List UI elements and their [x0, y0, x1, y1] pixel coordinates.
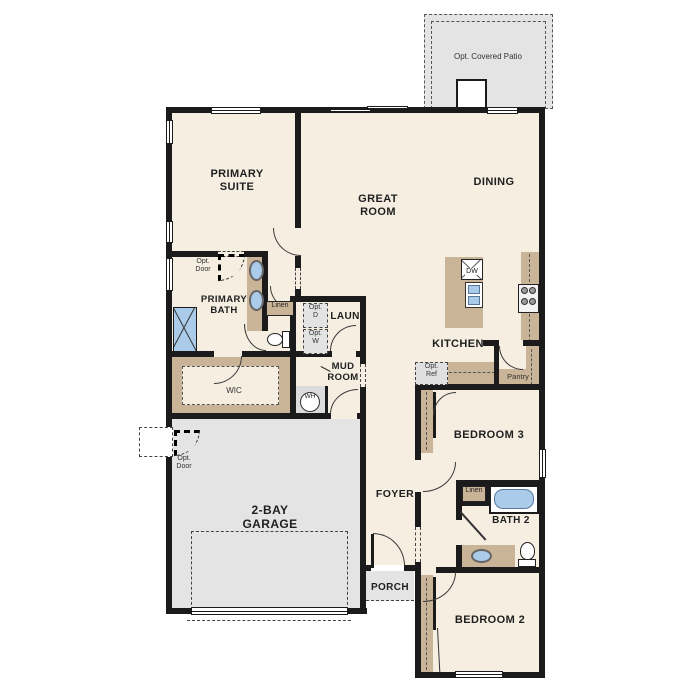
window — [166, 120, 173, 144]
kitchen-rear-counter — [447, 362, 497, 384]
island-sink-basin — [468, 285, 480, 294]
label-pantry: Pantry — [498, 372, 538, 381]
wall — [360, 387, 366, 415]
wall — [295, 107, 301, 228]
window — [166, 258, 173, 291]
window — [455, 671, 503, 678]
dishwasher: DW — [461, 259, 483, 280]
room-label-primary-bath: PRIMARY BATH — [194, 294, 254, 316]
room-label-mud-room: MUD ROOM — [320, 361, 366, 383]
window — [539, 449, 546, 478]
sliding-door-panel — [367, 106, 408, 110]
wall — [539, 107, 545, 392]
wall — [360, 565, 371, 571]
burner — [521, 287, 528, 294]
label-opt-door-garage: Opt. Door — [169, 455, 199, 472]
bathtub-basin — [494, 489, 534, 509]
sink — [471, 549, 492, 563]
garage-door — [191, 607, 348, 615]
room-label-bath2: BATH 2 — [491, 515, 531, 527]
room-label-primary-suite: PRIMARY SUITE — [202, 168, 272, 194]
room-label-wic: WIC — [214, 386, 254, 396]
wall — [166, 107, 172, 614]
opt-refrigerator: Opt. Ref — [415, 362, 448, 385]
room-label-foyer: FOYER — [365, 488, 425, 500]
counter-dash-line — [449, 372, 495, 373]
wall — [166, 251, 218, 257]
burner — [529, 298, 536, 305]
opt-door-dashed-box — [139, 427, 173, 457]
wall — [415, 384, 421, 460]
toilet-bowl — [520, 542, 535, 560]
window — [211, 107, 261, 114]
front-door-leaf — [371, 534, 374, 568]
island-sink-basin — [468, 296, 480, 305]
wall — [262, 251, 268, 331]
floor-plan: WH DW Linen Linen Opt. D Opt. W Opt. Ref… — [0, 0, 687, 687]
wall — [360, 296, 366, 364]
room-label-bedroom3: BEDROOM 3 — [439, 429, 539, 442]
car-bay-outline — [191, 531, 348, 615]
room-label-dining: DINING — [454, 176, 534, 189]
closet-dash-line — [426, 392, 427, 450]
dw-label: DW — [465, 268, 479, 275]
window — [166, 221, 173, 243]
room-label-great-room: GREAT ROOM — [348, 193, 408, 219]
burner — [529, 287, 536, 294]
linen-closet: Linen — [266, 301, 294, 316]
wall — [523, 340, 541, 346]
wall — [242, 351, 298, 357]
wall — [539, 386, 545, 678]
sliding-door-panel — [330, 109, 371, 113]
room-label-kitchen: KITCHEN — [418, 338, 498, 351]
wall — [360, 415, 366, 608]
bedroom3-closet-shelf — [421, 390, 433, 453]
wall — [404, 565, 421, 571]
label-opt-door: Opt. Door — [188, 258, 218, 275]
wall — [292, 296, 366, 302]
room-label-porch: PORCH — [360, 582, 420, 594]
wall — [415, 562, 421, 678]
garage-door-dash — [187, 620, 351, 621]
linen-closet: Linen — [462, 486, 486, 502]
sink — [249, 260, 264, 281]
window — [487, 107, 518, 114]
door-opening — [332, 351, 356, 357]
water-heater: WH — [300, 392, 320, 412]
toilet-bowl — [267, 333, 283, 346]
burner — [521, 298, 528, 305]
stove — [518, 284, 539, 313]
wall — [433, 392, 436, 438]
room-label-bedroom2: BEDROOM 2 — [440, 614, 540, 627]
cased-opening — [295, 268, 301, 289]
patio-inner-outline — [431, 21, 546, 109]
wall — [166, 413, 331, 419]
opt-washer: Opt. W — [303, 329, 328, 354]
room-label-laundry: LAUN — [325, 311, 365, 323]
cased-opening — [415, 527, 421, 562]
toilet-tank — [518, 559, 536, 567]
room-label-patio: Opt. Covered Patio — [438, 52, 538, 62]
toilet-tank — [282, 331, 290, 348]
patio-notch — [456, 79, 487, 109]
room-label-garage: 2-BAY GARAGE — [235, 503, 305, 531]
